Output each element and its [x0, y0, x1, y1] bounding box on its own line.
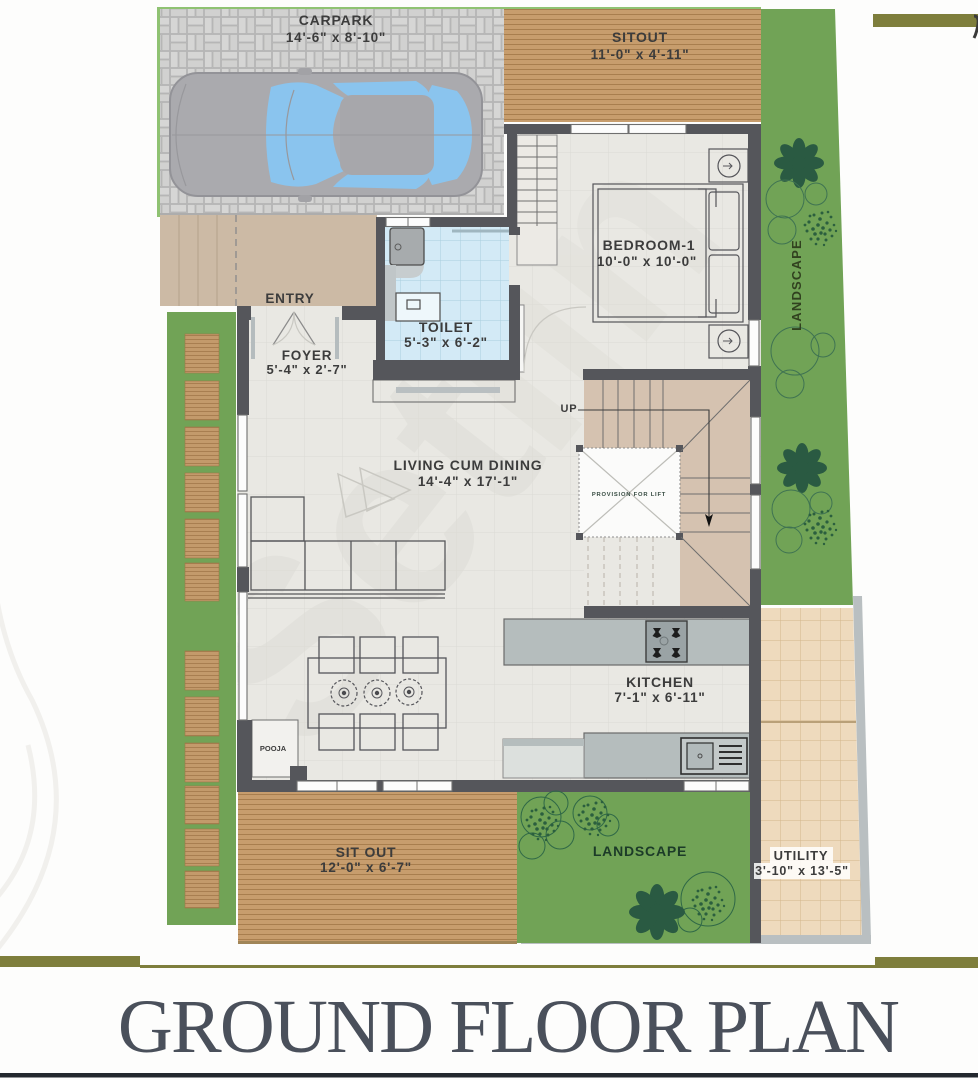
svg-text:7'-1" x 6'-11": 7'-1" x 6'-11": [614, 690, 705, 705]
svg-text:PROVISION FOR LIFT: PROVISION FOR LIFT: [592, 492, 666, 498]
svg-text:FOYER: FOYER: [282, 348, 333, 363]
svg-text:SITOUT: SITOUT: [612, 29, 668, 45]
svg-text:5'-4" x 2'-7": 5'-4" x 2'-7": [267, 362, 348, 377]
svg-text:UTILITY: UTILITY: [774, 848, 829, 863]
svg-text:BEDROOM-1: BEDROOM-1: [603, 237, 696, 253]
svg-text:10'-0" x 10'-0": 10'-0" x 10'-0": [597, 254, 697, 269]
svg-text:LIVING CUM DINING: LIVING CUM DINING: [394, 457, 543, 473]
svg-text:ENTRY: ENTRY: [265, 291, 314, 306]
svg-text:TOILET: TOILET: [419, 319, 473, 335]
svg-text:14'-6" x 8'-10": 14'-6" x 8'-10": [286, 30, 386, 45]
svg-text:LANDSCAPE: LANDSCAPE: [593, 843, 687, 859]
svg-text:12'-0" x 6'-7": 12'-0" x 6'-7": [320, 860, 412, 875]
svg-text:14'-4" x 17'-1": 14'-4" x 17'-1": [418, 474, 518, 489]
svg-text:3'-10" x 13'-5": 3'-10" x 13'-5": [755, 864, 849, 878]
svg-text:SIT OUT: SIT OUT: [336, 844, 397, 860]
svg-text:UP: UP: [561, 403, 578, 415]
svg-text:11'-0" x 4'-11": 11'-0" x 4'-11": [591, 47, 690, 62]
svg-text:GROUND FLOOR PLAN: GROUND FLOOR PLAN: [118, 985, 899, 1069]
svg-text:5'-3" x 6'-2": 5'-3" x 6'-2": [404, 335, 488, 350]
svg-text:KITCHEN: KITCHEN: [626, 674, 694, 690]
svg-text:LANDSCAPE: LANDSCAPE: [789, 239, 804, 331]
svg-text:CARPARK: CARPARK: [299, 12, 374, 28]
svg-text:POOJA: POOJA: [260, 744, 287, 753]
